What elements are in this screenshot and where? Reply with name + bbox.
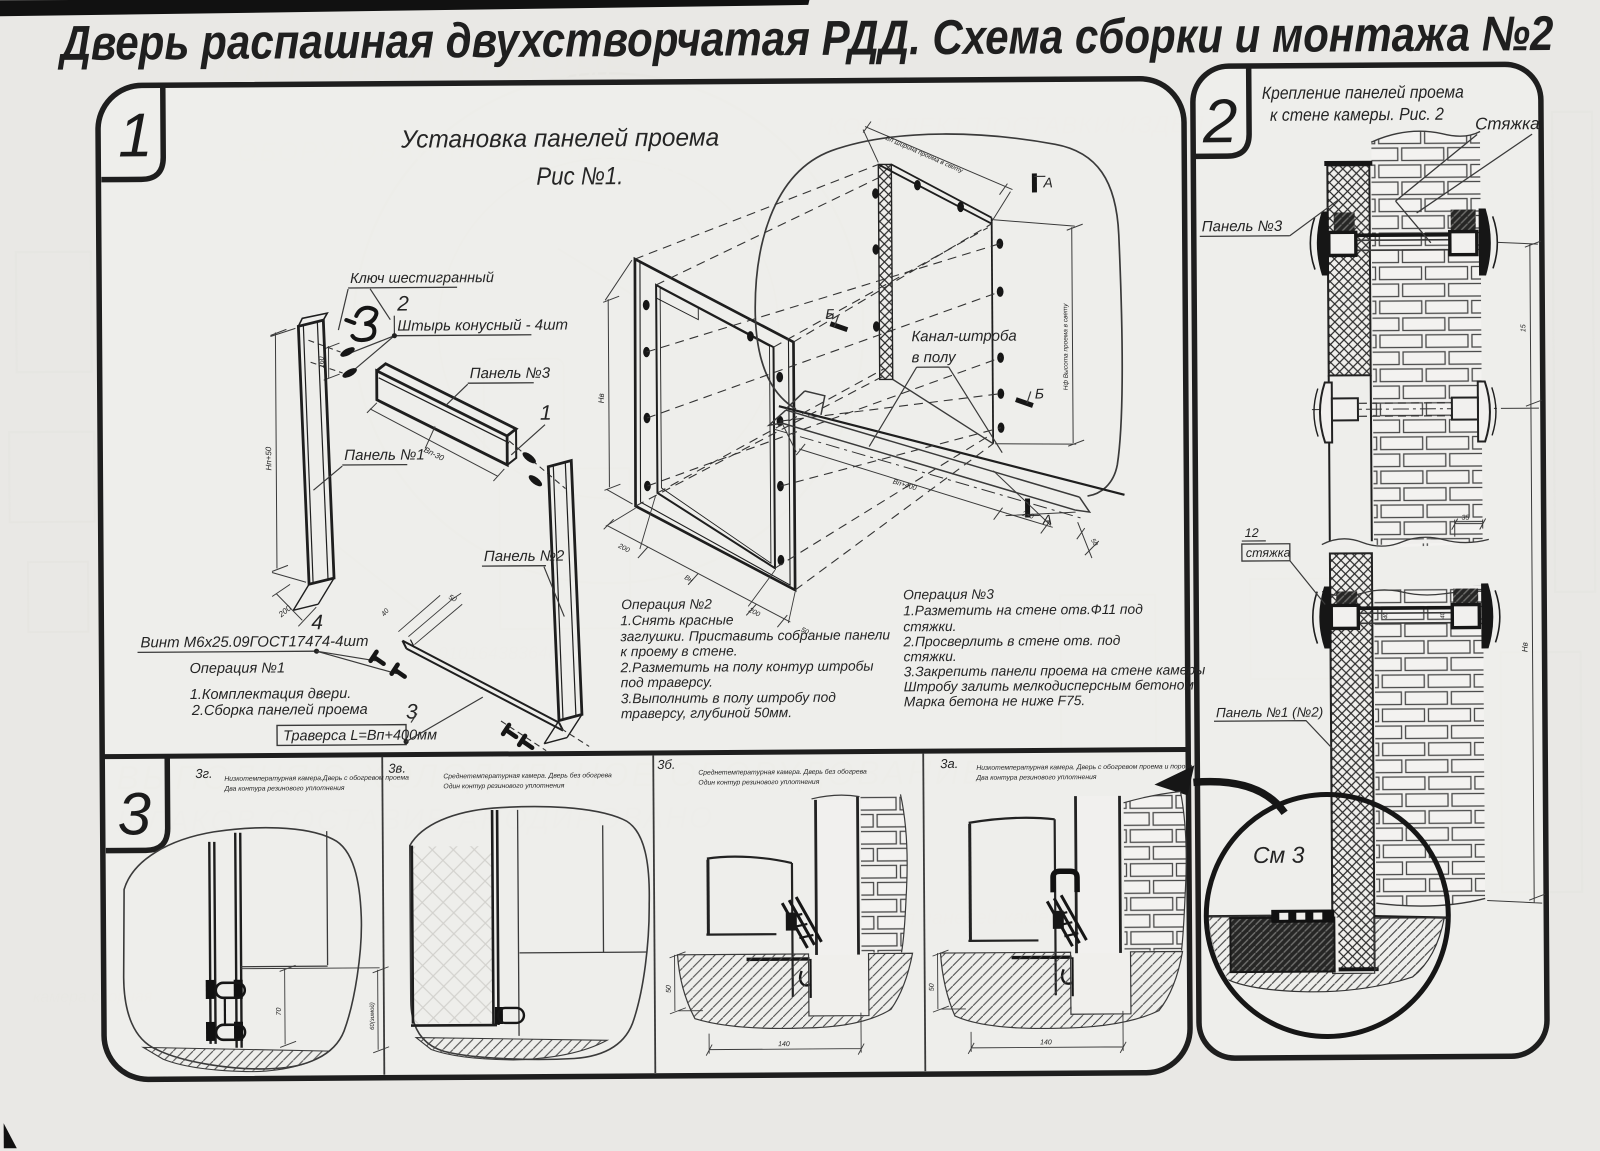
svg-text:15: 15 (1520, 324, 1527, 332)
svg-text:Среднетемпературная камера. Дв: Среднетемпературная камера. Дверь без об… (698, 768, 867, 777)
svg-text:Нф Высота проема в свету: Нф Высота проема в свету (1062, 303, 1070, 390)
svg-text:3: 3 (117, 780, 151, 847)
svg-text:Панель №1: Панель №1 (344, 446, 425, 464)
svg-text:50: 50 (666, 985, 673, 993)
svg-text:Стяжка: Стяжка (1475, 114, 1540, 133)
svg-text:3а.: 3а. (940, 756, 958, 771)
svg-text:Среднетемпературная камера. Дв: Среднетемпературная камера. Дверь без об… (443, 771, 612, 780)
svg-text:Траверса L=Вп+400мм: Траверса L=Вп+400мм (283, 727, 437, 744)
svg-text:заглушки. Приставить собраные: заглушки. Приставить собраные панели (619, 627, 890, 644)
svg-text:1: 1 (540, 402, 552, 425)
svg-text:Один контур резинового уплотне: Один контур резинового уплотнения (443, 782, 564, 791)
svg-text:под траверсу.: под траверсу. (621, 675, 713, 691)
svg-text:Дверь распашная двухстворчатая: Дверь распашная двухстворчатая РДД. Схем… (57, 7, 1554, 71)
svg-text:Два контура резинового уплотне: Два контура резинового уплотнения (975, 774, 1097, 782)
svg-text:стяжка: стяжка (1246, 546, 1291, 560)
svg-text:40: 40 (1440, 611, 1446, 618)
svg-text:Марка бетона не ниже F75.: Марка бетона не ниже F75. (904, 693, 1085, 709)
svg-text:Нп+50: Нп+50 (264, 446, 273, 470)
svg-text:траверсу, глубиной 50мм.: траверсу, глубиной 50мм. (621, 705, 792, 721)
svg-text:140: 140 (778, 1041, 790, 1048)
svg-text:1.Комплектация двери.: 1.Комплектация двери. (190, 686, 352, 703)
svg-text:1.Снять красные: 1.Снять красные (620, 612, 734, 628)
svg-text:См 3: См 3 (1253, 842, 1305, 868)
svg-text:Штробу залить мелкодисперсным: Штробу залить мелкодисперсным бетоном (904, 677, 1195, 694)
svg-text:Канал-штроба: Канал-штроба (911, 328, 1016, 346)
svg-text:стяжки.: стяжки. (903, 619, 956, 634)
svg-text:4: 4 (311, 611, 323, 634)
svg-text:2.Просверлить в стене отв. п: 2.Просверлить в стене отв. под (902, 633, 1120, 649)
svg-text:Операция №3: Операция №3 (903, 587, 994, 603)
svg-text:40: 40 (1383, 612, 1389, 619)
svg-text:3в.: 3в. (388, 761, 406, 776)
svg-text:Нв: Нв (1520, 642, 1529, 652)
svg-text:Панель №3: Панель №3 (470, 365, 551, 383)
svg-text:140: 140 (1040, 1039, 1052, 1046)
svg-text:2.Разметить на полу контур штр: 2.Разметить на полу контур штробы (620, 659, 874, 676)
svg-text:Винт М6х25.09ГОСТ17474-4шт: Винт М6х25.09ГОСТ17474-4шт (140, 633, 368, 652)
svg-text:70: 70 (276, 1008, 283, 1016)
svg-text:Нв: Нв (597, 393, 606, 403)
svg-text:Низкотемпературная камера.Двер: Низкотемпературная камера.Дверь с обогре… (224, 774, 409, 783)
svg-text:Б: Б (825, 306, 834, 322)
svg-text:Операция №1: Операция №1 (190, 660, 285, 677)
svg-text:к стене камеры. Рис. 2: к стене камеры. Рис. 2 (1270, 104, 1444, 125)
svg-text:Установка панелей проема: Установка панелей проема (400, 124, 719, 154)
svg-text:в полу: в полу (912, 349, 958, 366)
svg-text:Низкотемпературная камера. Две: Низкотемпературная камера. Дверь с обогр… (976, 762, 1192, 771)
svg-text:стяжки.: стяжки. (904, 649, 957, 664)
svg-text:2: 2 (396, 293, 409, 316)
svg-text:60(зимой): 60(зимой) (369, 1002, 376, 1030)
svg-text:Один контур резинового уплотне: Один контур резинового уплотнения (698, 778, 819, 787)
svg-text:2.Сборка панелей проема: 2.Сборка панелей проема (191, 702, 368, 719)
svg-text:1.Разметить на стене отв.Ф11 п: 1.Разметить на стене отв.Ф11 под (903, 602, 1143, 619)
svg-text:Б: Б (1035, 385, 1044, 401)
svg-text:2: 2 (1202, 87, 1238, 156)
svg-text:35: 35 (1462, 515, 1470, 522)
svg-text:3.Выполнить в полу штробу под: 3.Выполнить в полу штробу под (621, 690, 836, 706)
svg-text:Крепление панелей проема: Крепление панелей проема (1262, 82, 1464, 103)
svg-text:Панель №3: Панель №3 (1202, 218, 1283, 236)
svg-text:Панель №2: Панель №2 (484, 548, 565, 566)
svg-text:12: 12 (1245, 526, 1259, 540)
svg-text:Рис №1.: Рис №1. (536, 162, 623, 191)
svg-text:Панель №1 (№2): Панель №1 (№2) (1216, 705, 1323, 721)
svg-text:Два контура резинового уплотне: Два контура резинового уплотнения (223, 785, 345, 793)
svg-text:Операция №2: Операция №2 (621, 597, 712, 613)
svg-text:50: 50 (929, 983, 936, 991)
svg-text:1: 1 (118, 101, 153, 170)
svg-text:к проему в стене.: к проему в стене. (620, 643, 737, 659)
svg-text:3г.: 3г. (195, 766, 212, 781)
svg-text:А: А (1042, 174, 1052, 190)
svg-text:3б.: 3б. (657, 757, 675, 772)
svg-text:Штырь конусный - 4шт: Штырь конусный - 4шт (397, 317, 568, 335)
svg-text:Ключ шестигранный: Ключ шестигранный (350, 270, 494, 287)
